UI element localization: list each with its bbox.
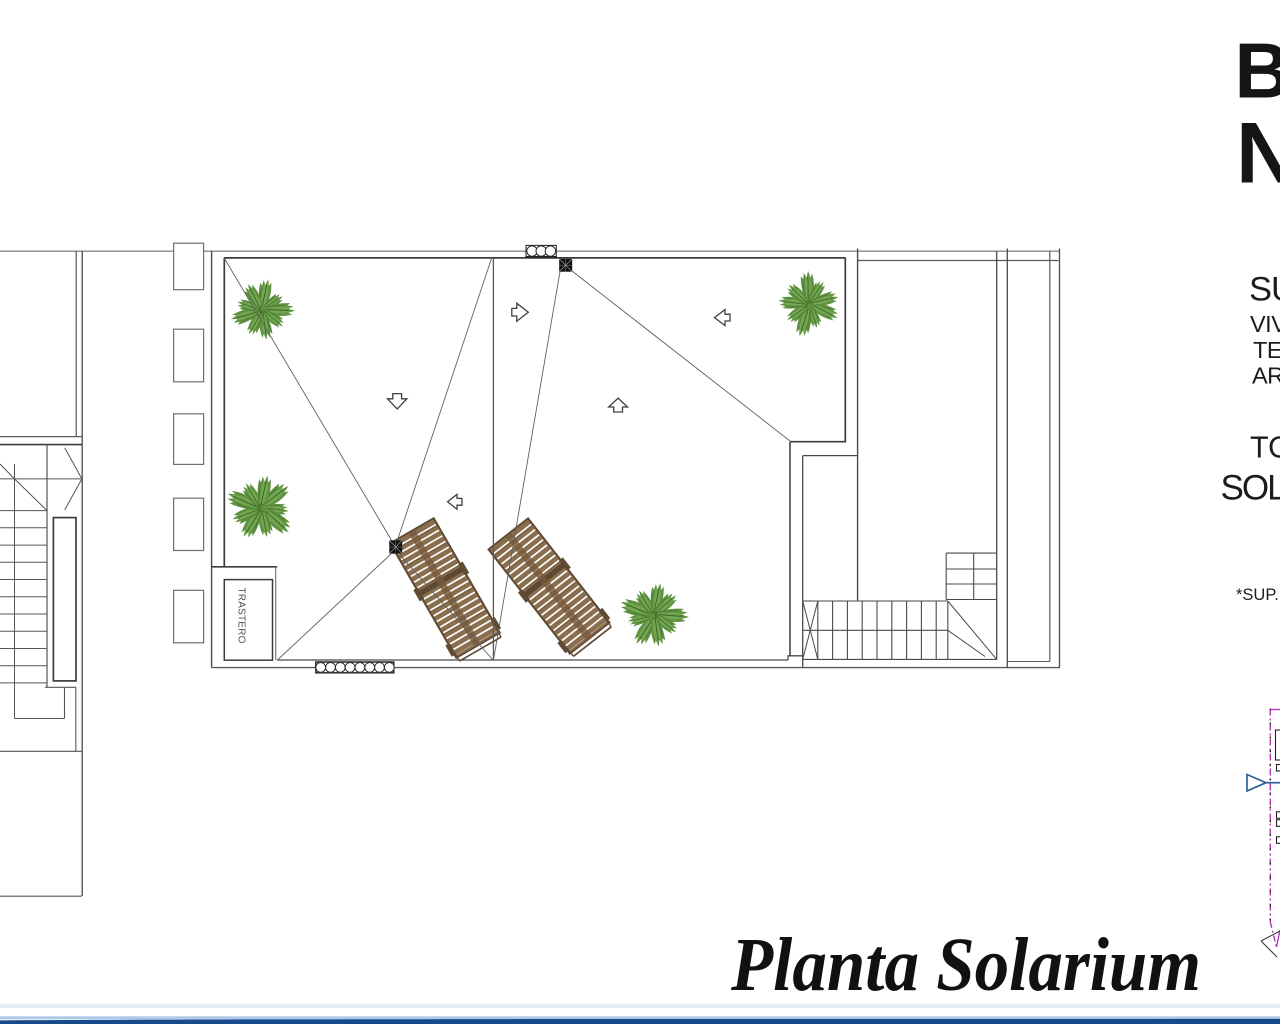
svg-text:N: N: [1236, 106, 1280, 202]
svg-text:SU: SU: [1249, 271, 1280, 309]
svg-text:AR: AR: [1252, 363, 1280, 389]
svg-text:B: B: [1235, 27, 1280, 115]
svg-text:TE: TE: [1253, 337, 1280, 363]
svg-text:*SUP.: *SUP.: [1236, 586, 1279, 604]
svg-text:TRASTERO: TRASTERO: [235, 588, 246, 644]
svg-text:Planta Solarium: Planta Solarium: [730, 923, 1201, 1007]
svg-text:SOL: SOL: [1221, 469, 1280, 508]
svg-text:TO: TO: [1250, 431, 1280, 465]
svg-text:VIV: VIV: [1250, 311, 1280, 337]
